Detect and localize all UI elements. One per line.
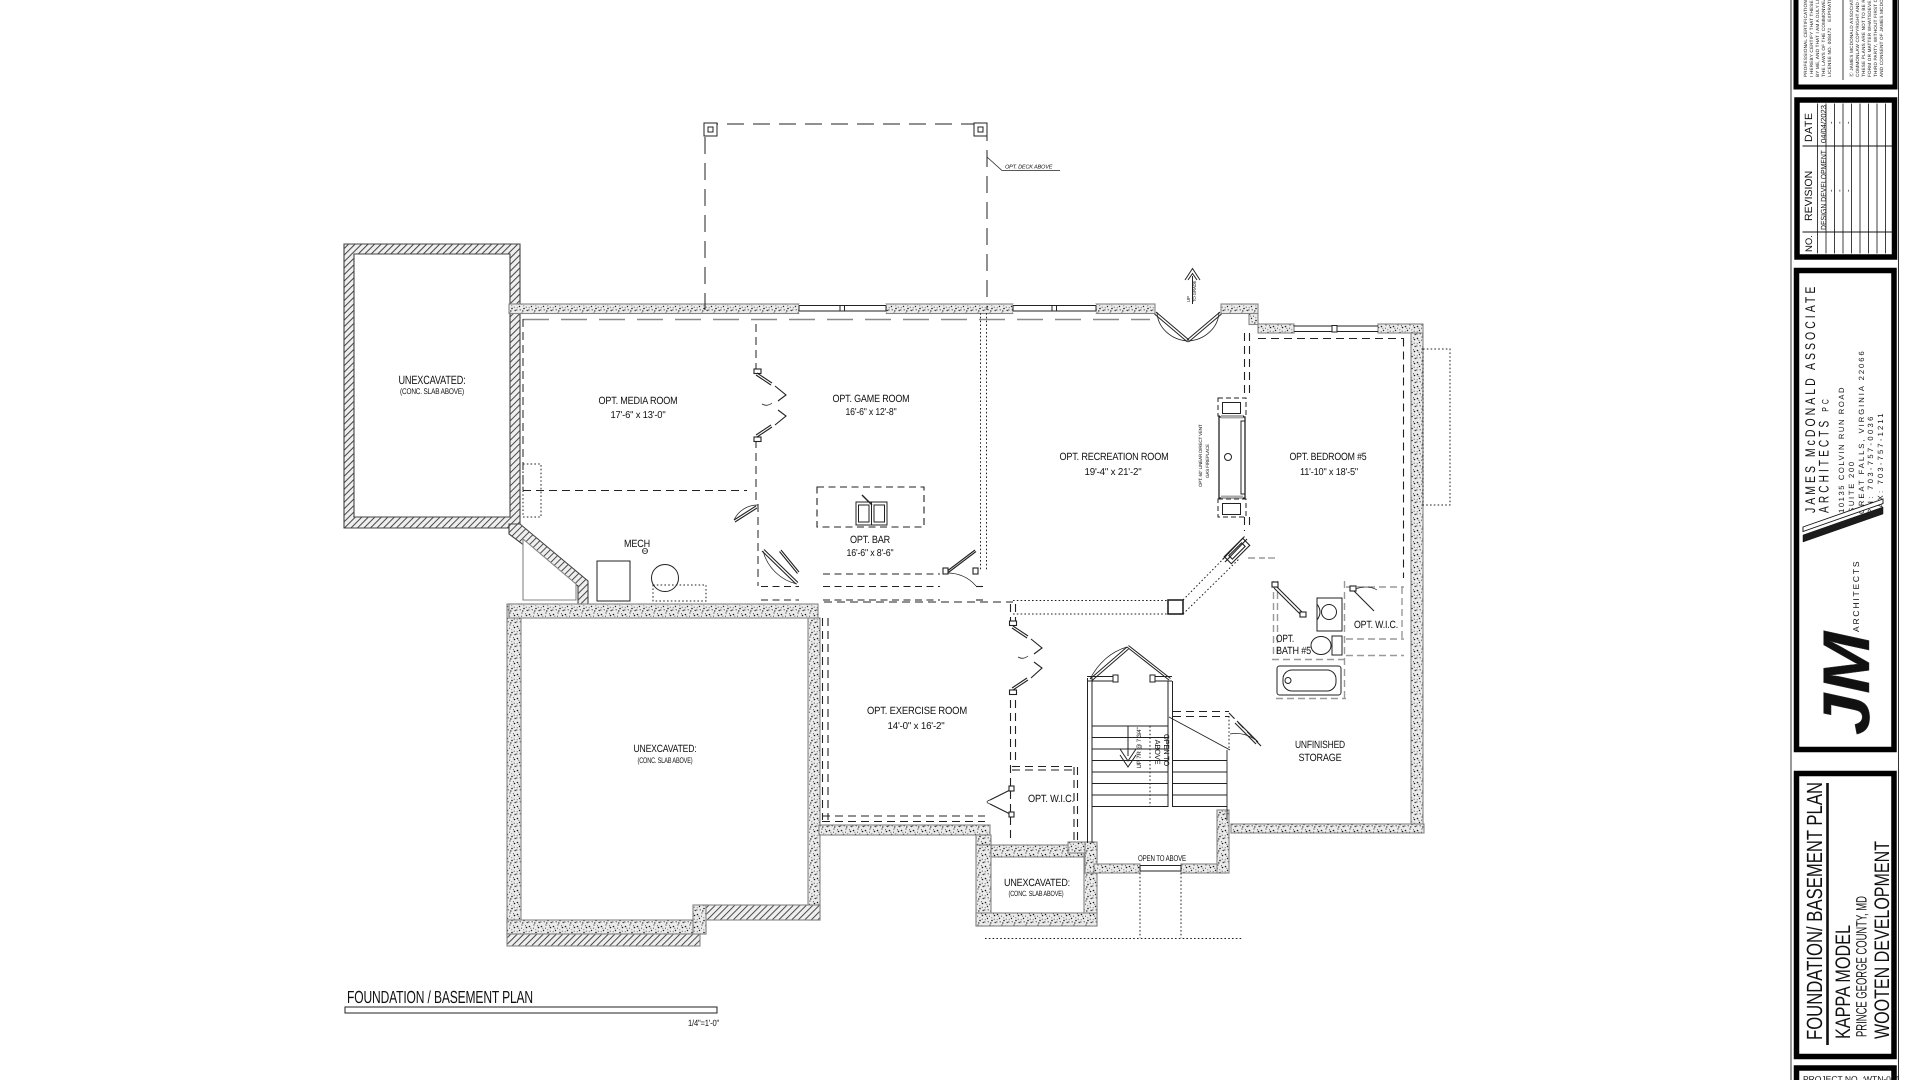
svg-text:17'-6" x 13'-0": 17'-6" x 13'-0" (611, 410, 667, 421)
svg-text:11'-10" x 18'-5": 11'-10" x 18'-5" (1300, 467, 1359, 478)
svg-text:(CONC. SLAB ABOVE): (CONC. SLAB ABOVE) (638, 756, 693, 765)
svg-text:WTN-001: WTN-001 (1864, 1074, 1901, 1080)
svg-text:THIRD PARTY, WITHOUT FIRST OBT: THIRD PARTY, WITHOUT FIRST OBTAINING (1873, 0, 1878, 77)
svg-text:GAS FIREPLACE: GAS FIREPLACE (1205, 444, 1210, 478)
svg-text:UP: UP (1186, 296, 1191, 302)
svg-text:UNEXCAVATED:: UNEXCAVATED: (399, 373, 466, 387)
svg-text:COMMONLAW COPYRIGHT AND OTHER: COMMONLAW COPYRIGHT AND OTHER PRO (1855, 0, 1860, 77)
svg-text:BY ME, AND THAT I AM A DULY LI: BY ME, AND THAT I AM A DULY LICENSED (1815, 0, 1820, 77)
svg-text:OPT. BEDROOM #5: OPT. BEDROOM #5 (1290, 451, 1367, 463)
svg-text:Ⓒ JAMES MCDONALD ASSOCIATE ARC: Ⓒ JAMES MCDONALD ASSOCIATE ARCHIT (1849, 0, 1854, 77)
svg-text:16'-6" x 12'-8": 16'-6" x 12'-8" (846, 407, 898, 418)
svg-text:FAX: 703-757-1211: FAX: 703-757-1211 (1876, 411, 1885, 514)
svg-text:AND CONSENT OF JAMES MCDONALD: AND CONSENT OF JAMES MCDONALD ASS (1879, 0, 1884, 77)
svg-text:STORAGE: STORAGE (1299, 752, 1342, 764)
svg-text:OPT. BAR: OPT. BAR (850, 534, 891, 546)
svg-text:ABOVE: ABOVE (1153, 740, 1162, 765)
svg-text:14'-0" x 16'-2": 14'-0" x 16'-2" (888, 721, 946, 732)
svg-text:(CONC. SLAB ABOVE): (CONC. SLAB ABOVE) (1009, 889, 1064, 898)
svg-text:WOOTEN DEVELOPMENT: WOOTEN DEVELOPMENT (1871, 841, 1894, 1039)
svg-text:TO GRADE: TO GRADE (1192, 280, 1197, 302)
svg-text:16'-6" x 8'-6": 16'-6" x 8'-6" (847, 548, 895, 559)
svg-text:OPT. DECK ABOVE: OPT. DECK ABOVE (1005, 165, 1053, 171)
svg-text:UNEXCAVATED:: UNEXCAVATED: (1004, 877, 1070, 889)
svg-text:OPT. RECREATION ROOM: OPT. RECREATION ROOM (1060, 451, 1169, 463)
svg-text:MECH: MECH (624, 538, 650, 550)
svg-text:FOUNDATION / BASEMENT PLAN: FOUNDATION / BASEMENT PLAN (347, 987, 533, 1007)
svg-text:FORM OR MATTER WHATSOEVER, NOR: FORM OR MATTER WHATSOEVER, NOR ARE (1867, 0, 1872, 77)
svg-text:-: - (1844, 189, 1853, 192)
svg-text:OPT. EXERCISE ROOM: OPT. EXERCISE ROOM (867, 705, 967, 717)
svg-text:KAPPA MODEL: KAPPA MODEL (1832, 925, 1855, 1039)
svg-text:THESE PLANS ARE NOT TO BE REPR: THESE PLANS ARE NOT TO BE REPRODUC (1861, 0, 1866, 77)
svg-text:19'-4" x 21'-2": 19'-4" x 21'-2" (1085, 467, 1143, 478)
svg-text:-: - (1844, 121, 1853, 124)
svg-text:THE LAWS OF THE COMMONWEALTH O: THE LAWS OF THE COMMONWEALTH OF M (1821, 0, 1826, 77)
svg-text:PRINCE GEORGE COUNTY, MD: PRINCE GEORGE COUNTY, MD (1854, 896, 1871, 1037)
svg-text:LICENSE NO. 008472 EXPIRATI: LICENSE NO. 008472 EXPIRATION D (1827, 0, 1832, 77)
svg-text:BATH #5: BATH #5 (1276, 645, 1311, 657)
svg-text:ARCHITECTS PC: ARCHITECTS PC (1816, 396, 1832, 513)
svg-text:UNEXCAVATED:: UNEXCAVATED: (634, 743, 697, 755)
svg-text:(CONC. SLAB ABOVE): (CONC. SLAB ABOVE) (400, 387, 464, 396)
svg-text:FOUNDATION/ BASEMENT PLAN: FOUNDATION/ BASEMENT PLAN (1802, 782, 1827, 1040)
svg-text:OPT. W.I.C.: OPT. W.I.C. (1354, 619, 1398, 631)
svg-text:OPT.: OPT. (1276, 633, 1294, 645)
svg-text:DATE: DATE (1803, 112, 1815, 142)
svg-text:PROFESSIONAL CERTIFICATION:: PROFESSIONAL CERTIFICATION: (1803, 0, 1808, 77)
svg-text:I HEREBY CERTIFY THAT THESE DO: I HEREBY CERTIFY THAT THESE DOCUMEN (1809, 0, 1814, 77)
svg-text:OPT. W.I.C.: OPT. W.I.C. (1028, 793, 1074, 805)
svg-text:PH: 703-757-0036: PH: 703-757-0036 (1866, 414, 1875, 514)
svg-text:OPT. GAME ROOM: OPT. GAME ROOM (833, 393, 910, 405)
svg-text:10135 COLVIN RUN ROAD: 10135 COLVIN RUN ROAD (1837, 386, 1846, 513)
svg-text:PROJECT NO. :: PROJECT NO. : (1803, 1074, 1865, 1080)
svg-text:REVISION: REVISION (1803, 171, 1815, 221)
svg-text:UNFINISHED: UNFINISHED (1295, 739, 1345, 751)
svg-text:NO.: NO. (1804, 235, 1815, 252)
svg-text:1/4"=1'-0": 1/4"=1'-0" (688, 1018, 719, 1028)
svg-text:OPEN TO: OPEN TO (1162, 734, 1171, 766)
svg-text:OPEN TO ABOVE: OPEN TO ABOVE (1138, 853, 1186, 863)
svg-text:OPT. MEDIA ROOM: OPT. MEDIA ROOM (599, 395, 678, 407)
svg-text:ARCHITECTS: ARCHITECTS (1851, 560, 1861, 632)
svg-text:OPT. 60" LINEAR DIRECT VENT: OPT. 60" LINEAR DIRECT VENT (1198, 424, 1203, 487)
svg-text:UP 7R @ 7 3/4": UP 7R @ 7 3/4" (1136, 728, 1143, 769)
svg-text:JM: JM (1809, 630, 1883, 735)
svg-text:GREAT FALLS, VIRGINIA 22066: GREAT FALLS, VIRGINIA 22066 (1857, 349, 1866, 514)
svg-text:SUITE 200: SUITE 200 (1847, 460, 1856, 513)
